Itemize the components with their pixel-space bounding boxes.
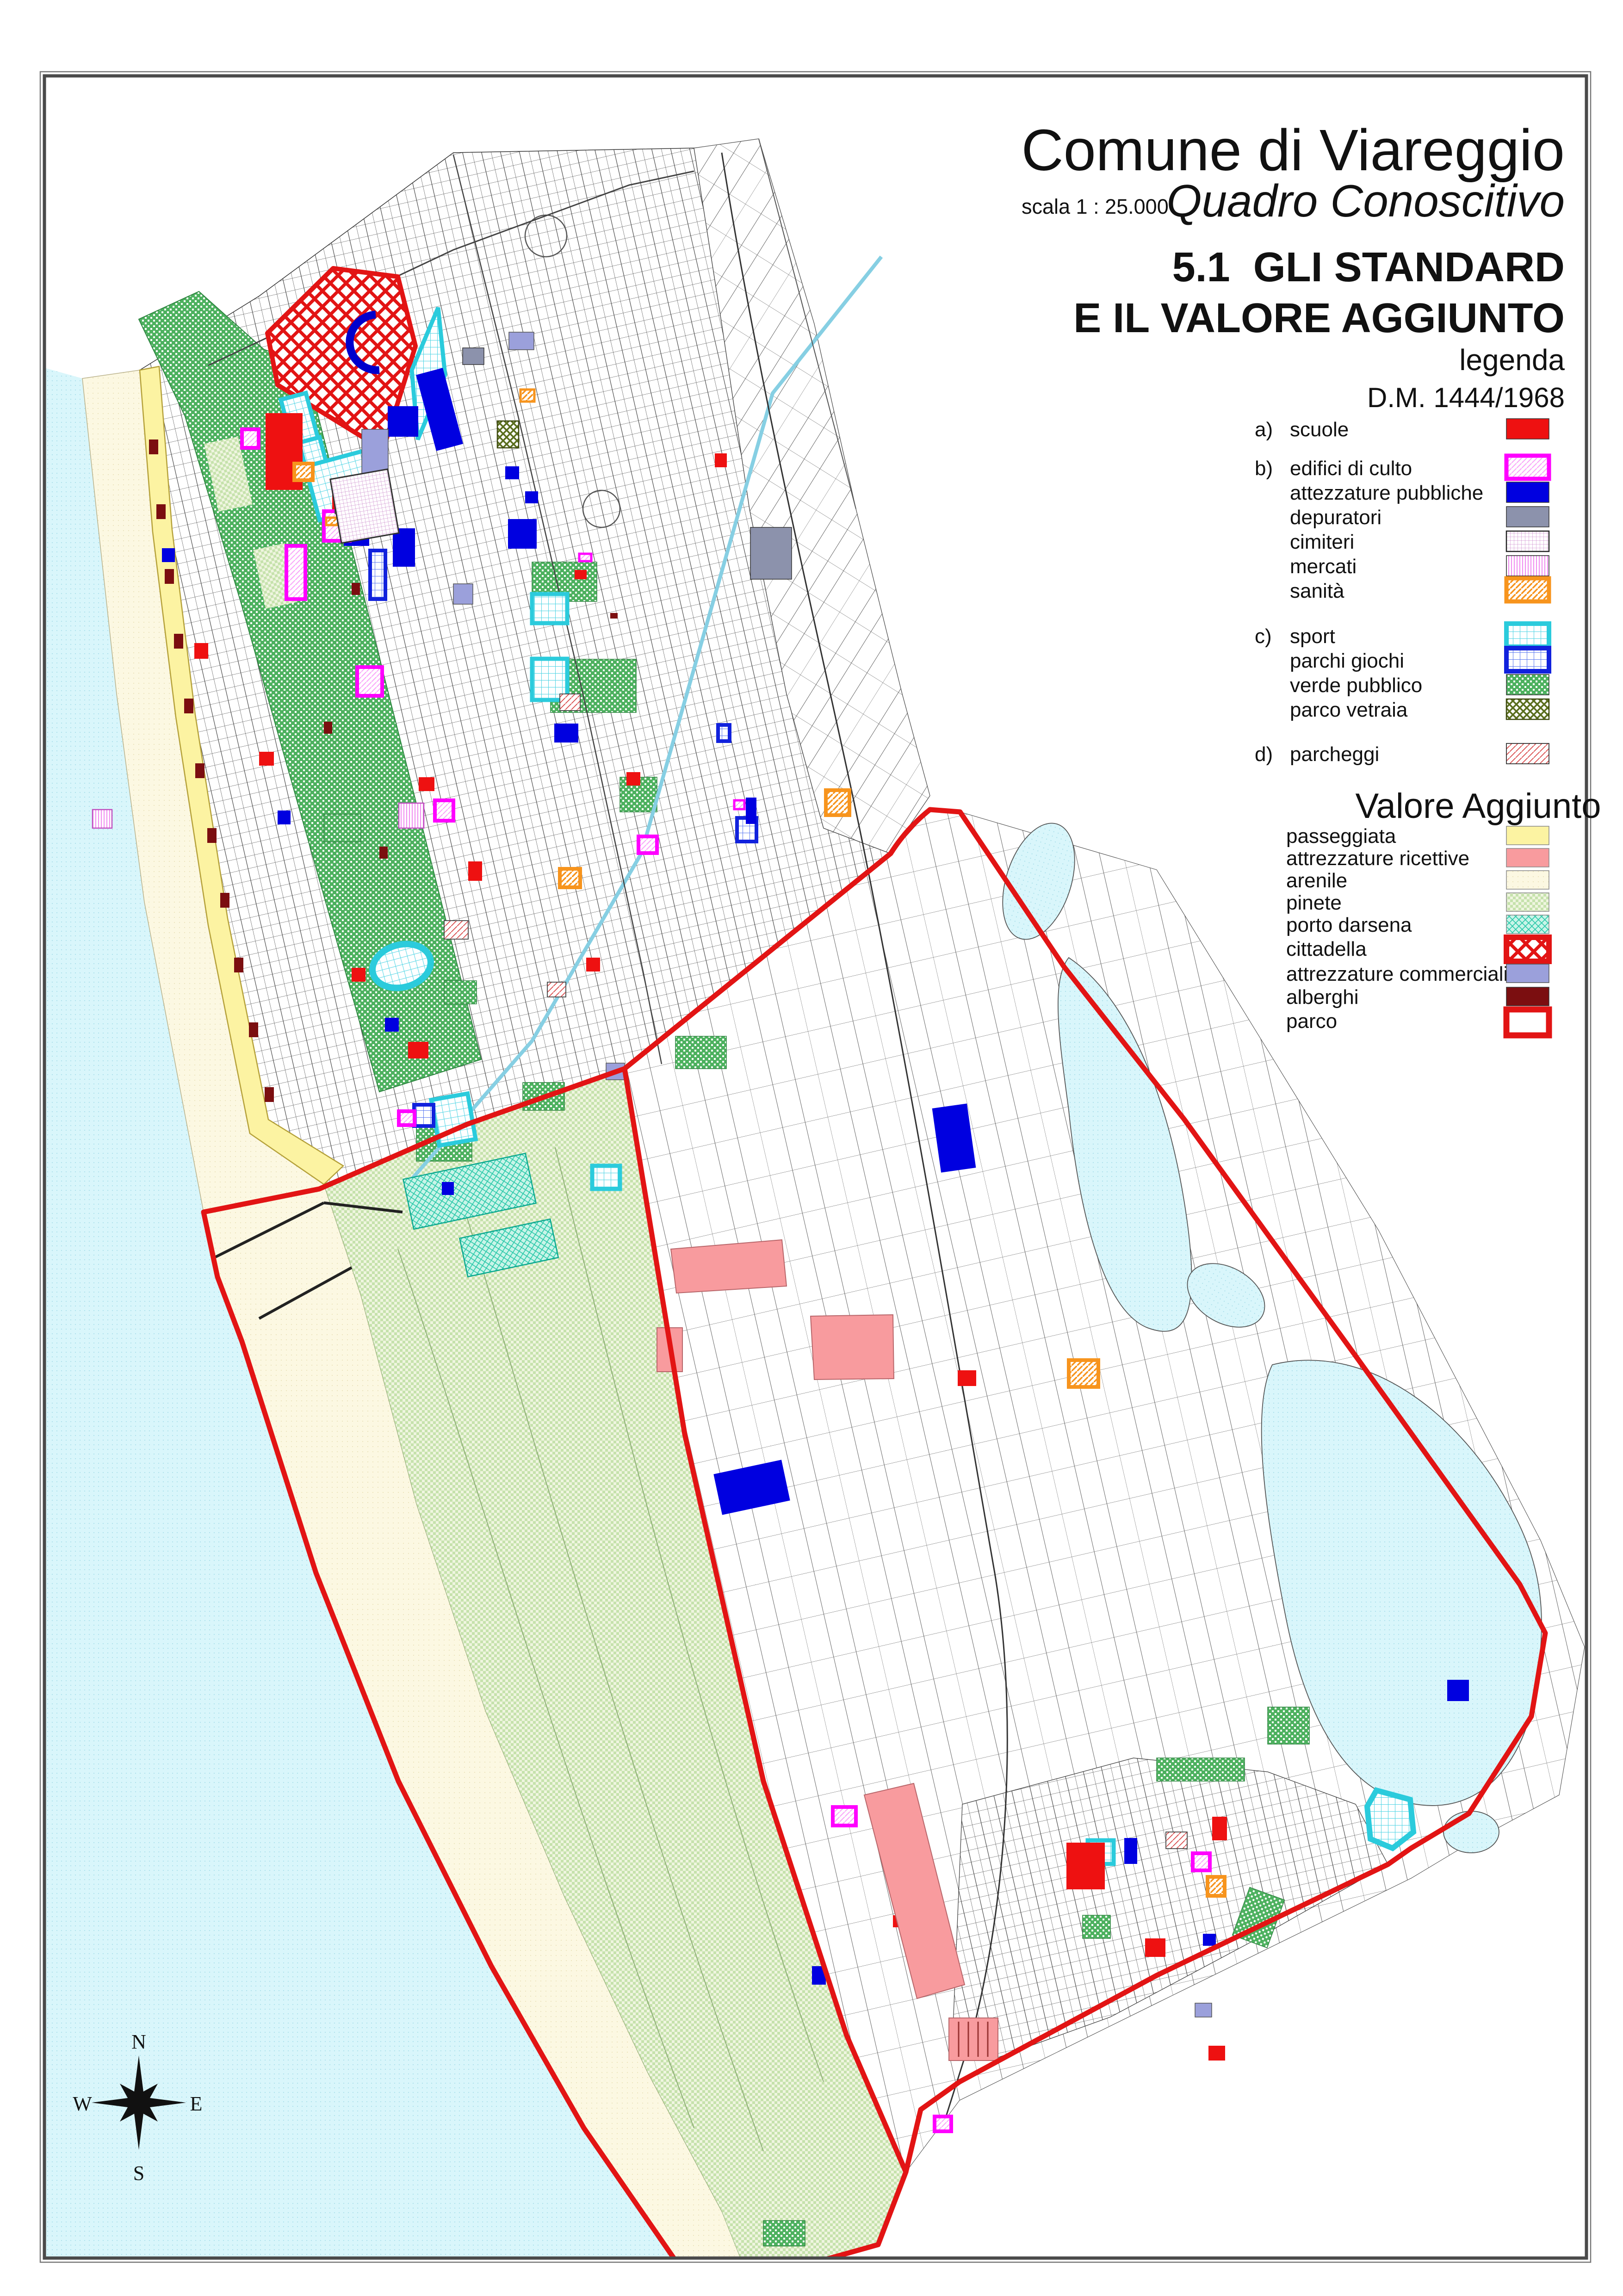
legend-swatch-attezzature-pubbliche — [1506, 482, 1549, 502]
legend-decree: a) scuole b) edifici di culto attezzatur… — [1255, 418, 1549, 766]
compass-south-label: S — [133, 2162, 144, 2185]
legend-swatch-parco — [1506, 1009, 1549, 1035]
valore-aggiunto-heading: Valore Aggiunto — [1356, 786, 1601, 826]
legend-swatch-edifici-di-culto — [1506, 456, 1549, 479]
compass-north-label: N — [131, 2030, 146, 2053]
legend-item-label: depuratori — [1290, 506, 1381, 529]
legend-item-label: porto darsena — [1286, 914, 1412, 936]
parco-vetraia-item — [497, 421, 519, 448]
legend-swatch-parcheggi — [1506, 743, 1549, 764]
legend-item-label: verde pubblico — [1290, 674, 1422, 697]
legend-item-label: attrezzature ricettive — [1286, 847, 1469, 870]
legend-item-label: pinete — [1286, 891, 1342, 914]
legend-prefix: c) — [1255, 625, 1272, 648]
cimiteri-items — [330, 469, 399, 543]
legend-swatch-verde-pubblico — [1506, 675, 1549, 695]
subtitle: Quadro Conoscitivo — [1166, 175, 1565, 226]
legend-swatch-parco-vetraia — [1506, 699, 1549, 719]
legend-swatch-depuratori — [1506, 507, 1549, 527]
legend-valore-aggiunto: Valore Aggiunto passeggiata attrezzature… — [1286, 786, 1601, 1035]
legend-swatch-cimiteri — [1506, 531, 1549, 551]
title-block: Comune di Viareggio scala 1 : 25.000 Qua… — [1022, 118, 1565, 413]
compass-west-label: W — [73, 2092, 92, 2115]
legend-swatch-attrezzature-commerciali — [1506, 964, 1549, 983]
page-title: Comune di Viareggio — [1022, 118, 1565, 183]
legend-swatch-parchi-giochi — [1506, 648, 1549, 671]
legend-item-label: edifici di culto — [1290, 457, 1412, 480]
legend-swatch-sanita — [1506, 578, 1549, 601]
map-canvas: Comune di Viareggio scala 1 : 25.000 Qua… — [0, 0, 1623, 2296]
legend-item-label: attrezzature commerciali — [1286, 963, 1508, 985]
legend-item-label: parco — [1286, 1010, 1337, 1033]
legend-label: legenda — [1459, 343, 1565, 377]
legend-swatch-cittadella — [1506, 937, 1549, 961]
legend-swatch-alberghi — [1506, 987, 1549, 1006]
legend-item-label: arenile — [1286, 869, 1347, 892]
legend-item-label: scuole — [1290, 418, 1349, 441]
legend-swatch-arenile — [1506, 871, 1549, 889]
legend-swatch-mercati — [1506, 556, 1549, 576]
legend-swatch-passeggiata — [1506, 826, 1549, 845]
legend-item-label: cimiteri — [1290, 531, 1354, 553]
legend-swatch-scuole — [1506, 419, 1549, 439]
legend-item-label: parco vetraia — [1290, 699, 1408, 721]
legend-swatch-attrezzature-ricettive — [1506, 848, 1549, 867]
legend-item-label: passeggiata — [1286, 825, 1396, 848]
legend-swatch-sport — [1506, 624, 1549, 647]
legend-prefix: b) — [1255, 457, 1273, 480]
heading-line2: E IL VALORE AGGIUNTO — [1073, 295, 1565, 341]
compass-east-label: E — [190, 2092, 203, 2115]
legend-item-label: cittadella — [1286, 938, 1367, 960]
legend-item-label: mercati — [1290, 555, 1357, 578]
scale-label: scala 1 : 25.000 — [1022, 195, 1169, 218]
legend-item-label: sport — [1290, 625, 1335, 648]
legend-prefix: a) — [1255, 418, 1273, 441]
legend-item-label: parchi giochi — [1290, 650, 1404, 672]
legend-swatch-porto-darsena — [1506, 915, 1549, 934]
legend-swatch-pinete — [1506, 893, 1549, 911]
legend-prefix: d) — [1255, 743, 1273, 766]
legend-item-label: alberghi — [1286, 986, 1359, 1009]
legend-item-label: parcheggi — [1290, 743, 1379, 766]
legend-item-label: sanità — [1290, 580, 1344, 602]
legend-item-label: attezzature pubbliche — [1290, 482, 1483, 504]
heading-line1: 5.1 GLI STANDARD — [1172, 244, 1565, 291]
decree-label: D.M. 1444/1968 — [1367, 382, 1565, 413]
